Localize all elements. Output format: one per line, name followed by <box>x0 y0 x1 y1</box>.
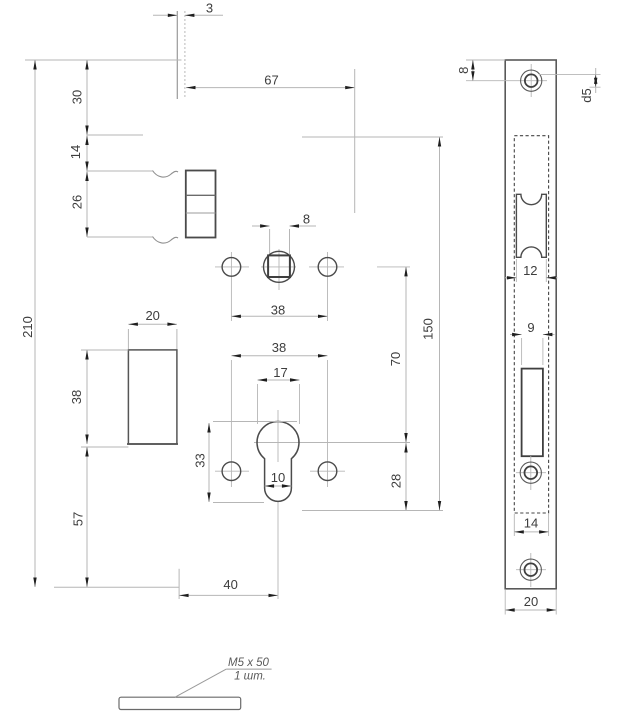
svg-text:9: 9 <box>527 320 534 335</box>
svg-text:3: 3 <box>206 1 213 16</box>
svg-text:17: 17 <box>273 365 287 380</box>
svg-text:8: 8 <box>456 67 471 74</box>
svg-text:28: 28 <box>389 474 404 488</box>
svg-text:10: 10 <box>271 470 285 485</box>
svg-text:26: 26 <box>70 195 85 209</box>
svg-text:40: 40 <box>223 577 237 592</box>
svg-text:8: 8 <box>303 211 310 226</box>
svg-text:14: 14 <box>68 145 83 159</box>
svg-text:20: 20 <box>524 594 538 609</box>
svg-text:57: 57 <box>71 512 86 526</box>
svg-text:33: 33 <box>193 453 208 467</box>
svg-text:150: 150 <box>421 318 436 340</box>
svg-text:67: 67 <box>264 73 278 88</box>
svg-text:14: 14 <box>524 516 538 531</box>
svg-text:1 шт.: 1 шт. <box>234 671 266 683</box>
svg-text:38: 38 <box>271 303 285 318</box>
svg-text:20: 20 <box>145 308 159 323</box>
svg-text:210: 210 <box>20 316 35 338</box>
svg-text:М5 x 50: М5 x 50 <box>228 657 270 669</box>
svg-text:12: 12 <box>523 263 537 278</box>
svg-text:30: 30 <box>70 90 85 104</box>
svg-text:38: 38 <box>69 390 84 404</box>
svg-text:38: 38 <box>272 340 286 355</box>
svg-text:70: 70 <box>388 352 403 366</box>
svg-text:d5: d5 <box>579 88 594 102</box>
